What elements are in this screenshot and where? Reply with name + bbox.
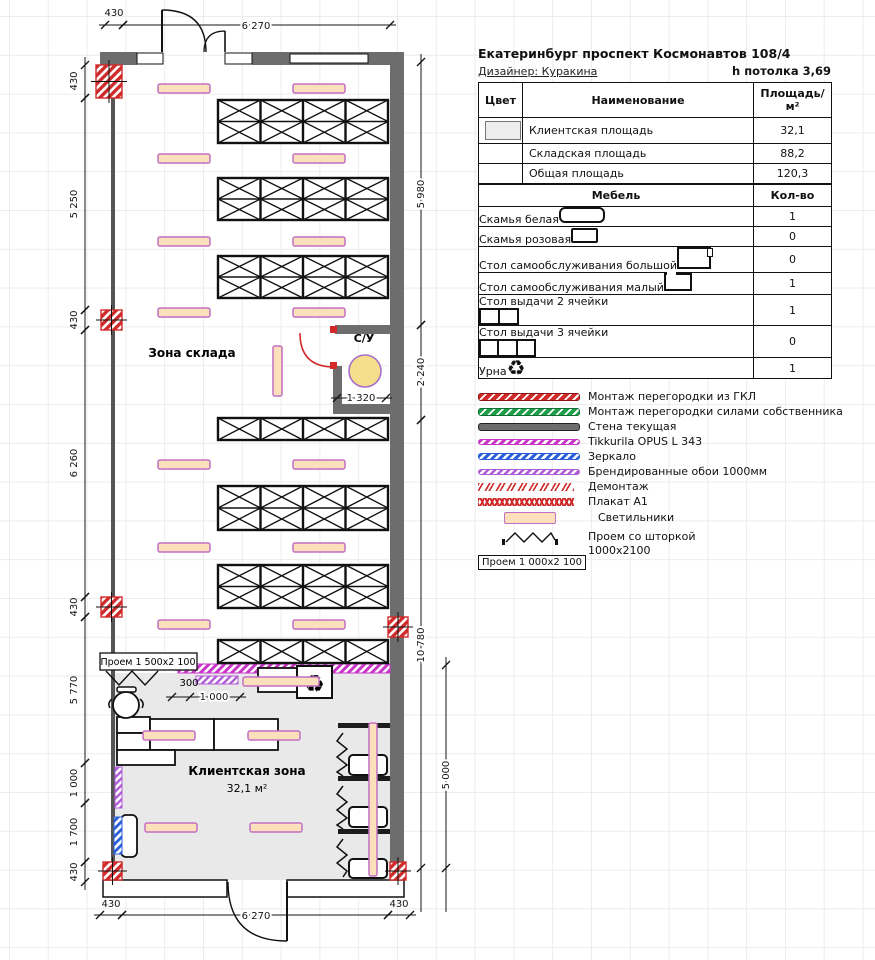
light-fixture xyxy=(143,731,195,740)
light-fixture xyxy=(145,823,197,832)
legend-item: Брендированные обои 1000мм xyxy=(478,464,831,479)
light-fixture xyxy=(158,460,210,469)
furniture-qty: 0 xyxy=(754,227,832,247)
issue-table-2-icon xyxy=(479,308,519,325)
furniture-qty: 1 xyxy=(754,273,832,295)
storage-zone-label: Зона склада xyxy=(148,346,235,360)
dimension-label: 5 250 xyxy=(69,190,80,219)
light-fixture xyxy=(158,237,210,246)
wc-door-arc xyxy=(300,333,334,367)
top-window-right xyxy=(290,54,368,63)
legend-label: Брендированные обои 1000мм xyxy=(588,465,767,478)
light-fixture xyxy=(273,346,282,396)
light-fixture xyxy=(158,620,210,629)
furniture-name: Скамья розовая xyxy=(479,233,571,246)
area-col-name: Наименование xyxy=(523,83,754,118)
legend-item: Стена текущая xyxy=(478,419,831,434)
legend-item: Светильники xyxy=(478,509,831,526)
furniture-name: Стол самообслуживания малый xyxy=(479,281,664,294)
furniture-name: Стол выдачи 3 ячейки xyxy=(479,326,608,339)
area-table-row: Клиентская площадь32,1 xyxy=(479,118,832,144)
area-name: Клиентская площадь xyxy=(523,118,754,144)
area-table-row: Общая площадь120,3 xyxy=(479,164,832,184)
furniture-name: Стол выдачи 2 ячейки xyxy=(479,295,608,308)
issue-table-3-icon xyxy=(479,339,536,357)
light-fixture xyxy=(250,823,302,832)
stall-bench xyxy=(349,859,387,878)
dimension-label: 1 000 xyxy=(200,692,229,703)
legend-swatch-b-red xyxy=(478,393,580,401)
dimension-label: 430 xyxy=(101,899,120,910)
designer-name: Дизайнер: Куракина xyxy=(478,65,597,78)
dimension-label: 430 xyxy=(104,8,123,19)
urn-icon: ♻ xyxy=(507,358,526,378)
color-swatch xyxy=(485,121,521,140)
bench-white-icon xyxy=(559,207,605,223)
column-marker xyxy=(383,612,413,642)
dimension: 6 260 xyxy=(69,322,89,605)
dimension-label: 430 xyxy=(69,71,80,90)
furniture-name: Скамья белая xyxy=(479,213,559,226)
furniture-table: Мебель Кол-во Скамья белая1Скамья розова… xyxy=(478,184,832,379)
dimension: 430 xyxy=(99,8,129,29)
light-fixture xyxy=(293,308,345,317)
area-col-color: Цвет xyxy=(479,83,523,118)
top-entrance-door xyxy=(162,10,225,52)
legend-item: Зеркало xyxy=(478,449,831,464)
dimension: 5 980 xyxy=(416,54,427,333)
dimension-label: 2 240 xyxy=(416,358,427,387)
area-col-area: Площадь/м² xyxy=(754,83,832,118)
legend-swatch-b-gray xyxy=(478,423,580,431)
stall-bench xyxy=(349,807,387,827)
dimension: 430 xyxy=(382,899,416,919)
legend-swatch-b-mag xyxy=(478,439,580,445)
storage-rack xyxy=(218,100,388,143)
dimension-label: 430 xyxy=(69,310,80,329)
column-marker xyxy=(91,60,127,103)
dimension: 1 700 xyxy=(69,795,89,870)
self-table-small-icon xyxy=(664,273,692,291)
bench-pink-icon xyxy=(571,228,598,243)
top-window-mid xyxy=(225,53,252,64)
furniture-col-qty: Кол-во xyxy=(754,185,832,207)
self-table-big-icon xyxy=(677,247,711,269)
furniture-table-row: Стол выдачи 2 ячейки1 xyxy=(479,295,832,326)
storefront-right xyxy=(287,880,404,897)
light-fixture xyxy=(158,543,210,552)
legend-item: Плакат А1 xyxy=(478,494,831,509)
furniture-name: Урна xyxy=(479,365,507,378)
dimension-label: 5 770 xyxy=(69,676,80,705)
wc-room xyxy=(300,325,390,414)
legend-label: Зеркало xyxy=(588,450,636,463)
legend-label: Монтаж перегородки из ГКЛ xyxy=(588,390,756,403)
legend-item: Демонтаж xyxy=(478,479,831,494)
light-fixture xyxy=(158,84,210,93)
furniture-table-row: Скамья белая1 xyxy=(479,207,832,227)
area-value: 88,2 xyxy=(754,144,832,164)
info-panel: Екатеринбург проспект Космонавтов 108/4 … xyxy=(478,46,831,570)
dimension: 10 780 xyxy=(416,412,427,912)
light-fixture xyxy=(293,620,345,629)
legend-label: Монтаж перегородки силами собственника xyxy=(588,405,843,418)
floor-plan: Проем 1 500х2 100 ♻ Зона склада С/У Клие… xyxy=(0,0,470,960)
legend-swatch-b-green xyxy=(478,408,580,416)
dimension: 430 xyxy=(69,854,89,890)
dimension-label: 1 320 xyxy=(347,393,376,404)
ceiling-height: h потолка 3,69 xyxy=(732,64,831,78)
mirror-strip xyxy=(114,817,122,854)
dimension: 2 240 xyxy=(416,317,427,428)
white-bench xyxy=(121,815,137,857)
legend-curtain-label-1: Проем со шторкой xyxy=(588,530,696,544)
dimension-label: 430 xyxy=(69,597,80,616)
storage-rack xyxy=(218,418,388,440)
legend-item: Tikkurila OPUS L 343 xyxy=(478,434,831,449)
light-fixture xyxy=(243,677,319,686)
legend-label: Светильники xyxy=(598,511,674,524)
furniture-qty: 1 xyxy=(754,295,832,326)
furniture-col-name: Мебель xyxy=(479,185,754,207)
storage-rack xyxy=(218,565,388,608)
area-table-row: Складская площадь88,2 xyxy=(479,144,832,164)
dimension: 430 xyxy=(94,899,128,919)
legend-opening-box: Проем 1 000х2 100 xyxy=(478,555,586,570)
dimension-label: 6 270 xyxy=(242,911,271,922)
light-fixture xyxy=(293,84,345,93)
dimension: 5 000 xyxy=(441,657,452,912)
dimension-label: 1 700 xyxy=(69,818,80,847)
furniture-qty: 1 xyxy=(754,358,832,379)
dimension-label: 430 xyxy=(69,862,80,881)
legend-swatch-b-light xyxy=(504,512,556,524)
legend-label: Tikkurila OPUS L 343 xyxy=(588,435,702,448)
legend-swatch-b-poster xyxy=(478,498,574,506)
dimension: 5 250 xyxy=(69,90,89,318)
storage-rack xyxy=(218,486,388,530)
opening-label: Проем 1 500х2 100 xyxy=(100,657,195,668)
area-value: 32,1 xyxy=(754,118,832,144)
light-fixture xyxy=(248,731,300,740)
furniture-name: Стол самообслуживания большой xyxy=(479,259,677,272)
dimension: 5 770 xyxy=(69,609,89,771)
client-zone-area: 32,1 м² xyxy=(227,782,268,795)
area-table: Цвет Наименование Площадь/м² Клиентская … xyxy=(478,82,832,184)
dimension-label: 430 xyxy=(389,899,408,910)
legend-swatch-b-blue xyxy=(478,453,580,460)
client-zone-label: Клиентская зона xyxy=(188,764,305,778)
legend-item: Монтаж перегородки из ГКЛ xyxy=(478,389,831,404)
dimension-label: 5 980 xyxy=(416,180,427,209)
legend-swatch-b-violet xyxy=(478,469,580,475)
dimension: 430 xyxy=(69,302,89,338)
area-value: 120,3 xyxy=(754,164,832,184)
storage-rack xyxy=(218,640,388,663)
legend-swatch-b-demo xyxy=(478,483,574,491)
storage-rack xyxy=(218,256,388,298)
dimension-label: 6 260 xyxy=(69,449,80,478)
branded-wallpaper-partition xyxy=(196,676,238,684)
wc-label: С/У xyxy=(354,332,375,345)
gap-300-label: 300 xyxy=(179,678,198,689)
furniture-qty: 1 xyxy=(754,207,832,227)
light-fixture xyxy=(293,460,345,469)
top-window-left xyxy=(137,53,163,64)
area-name: Складская площадь xyxy=(523,144,754,164)
light-fixture xyxy=(158,154,210,163)
stall-bench xyxy=(349,755,387,775)
furniture-table-row: Стол самообслуживания малый1 xyxy=(479,273,832,295)
dimension: 6 270 xyxy=(116,911,394,922)
legend-curtain-label-2: 1000х2100 xyxy=(588,544,696,558)
curtain-opening-legend-icon xyxy=(502,530,560,546)
dimension-label: 1 000 xyxy=(69,769,80,798)
storage-rack xyxy=(218,178,388,220)
area-name: Общая площадь xyxy=(523,164,754,184)
light-fixture xyxy=(293,237,345,246)
legend-label: Демонтаж xyxy=(588,480,649,493)
site-title: Екатеринбург проспект Космонавтов 108/4 xyxy=(478,46,831,61)
dimension: 430 xyxy=(69,57,89,106)
wc-fixture-circle xyxy=(349,355,381,387)
column-marker xyxy=(96,592,127,622)
legend: Монтаж перегородки из ГКЛМонтаж перегоро… xyxy=(478,389,831,526)
furniture-qty: 0 xyxy=(754,326,832,358)
light-fixture xyxy=(369,723,377,876)
furniture-table-row: Стол выдачи 3 ячейки0 xyxy=(479,326,832,358)
dimension-label: 10 780 xyxy=(416,628,427,663)
furniture-table-row: Урна♻1 xyxy=(479,358,832,379)
light-fixture xyxy=(293,154,345,163)
dimension: 6 270 xyxy=(117,21,396,32)
storefront-left xyxy=(103,880,227,897)
dimension-label: 5 000 xyxy=(441,761,452,790)
furniture-qty: 0 xyxy=(754,247,832,273)
dimension-label: 6 270 xyxy=(242,21,271,32)
furniture-table-row: Скамья розовая0 xyxy=(479,227,832,247)
light-fixture xyxy=(293,543,345,552)
dimension: 430 xyxy=(69,589,89,625)
column-marker xyxy=(96,305,127,335)
furniture-table-row: Стол самообслуживания большой0 xyxy=(479,247,832,273)
branded-wallpaper-strip xyxy=(115,767,122,808)
legend-item: Монтаж перегородки силами собственника xyxy=(478,404,831,419)
legend-curtain-item: Проем 1 000х2 100 Проем со шторкой 1000х… xyxy=(478,530,831,570)
light-fixture xyxy=(158,308,210,317)
legend-label: Стена текущая xyxy=(588,420,676,433)
legend-label: Плакат А1 xyxy=(588,495,648,508)
